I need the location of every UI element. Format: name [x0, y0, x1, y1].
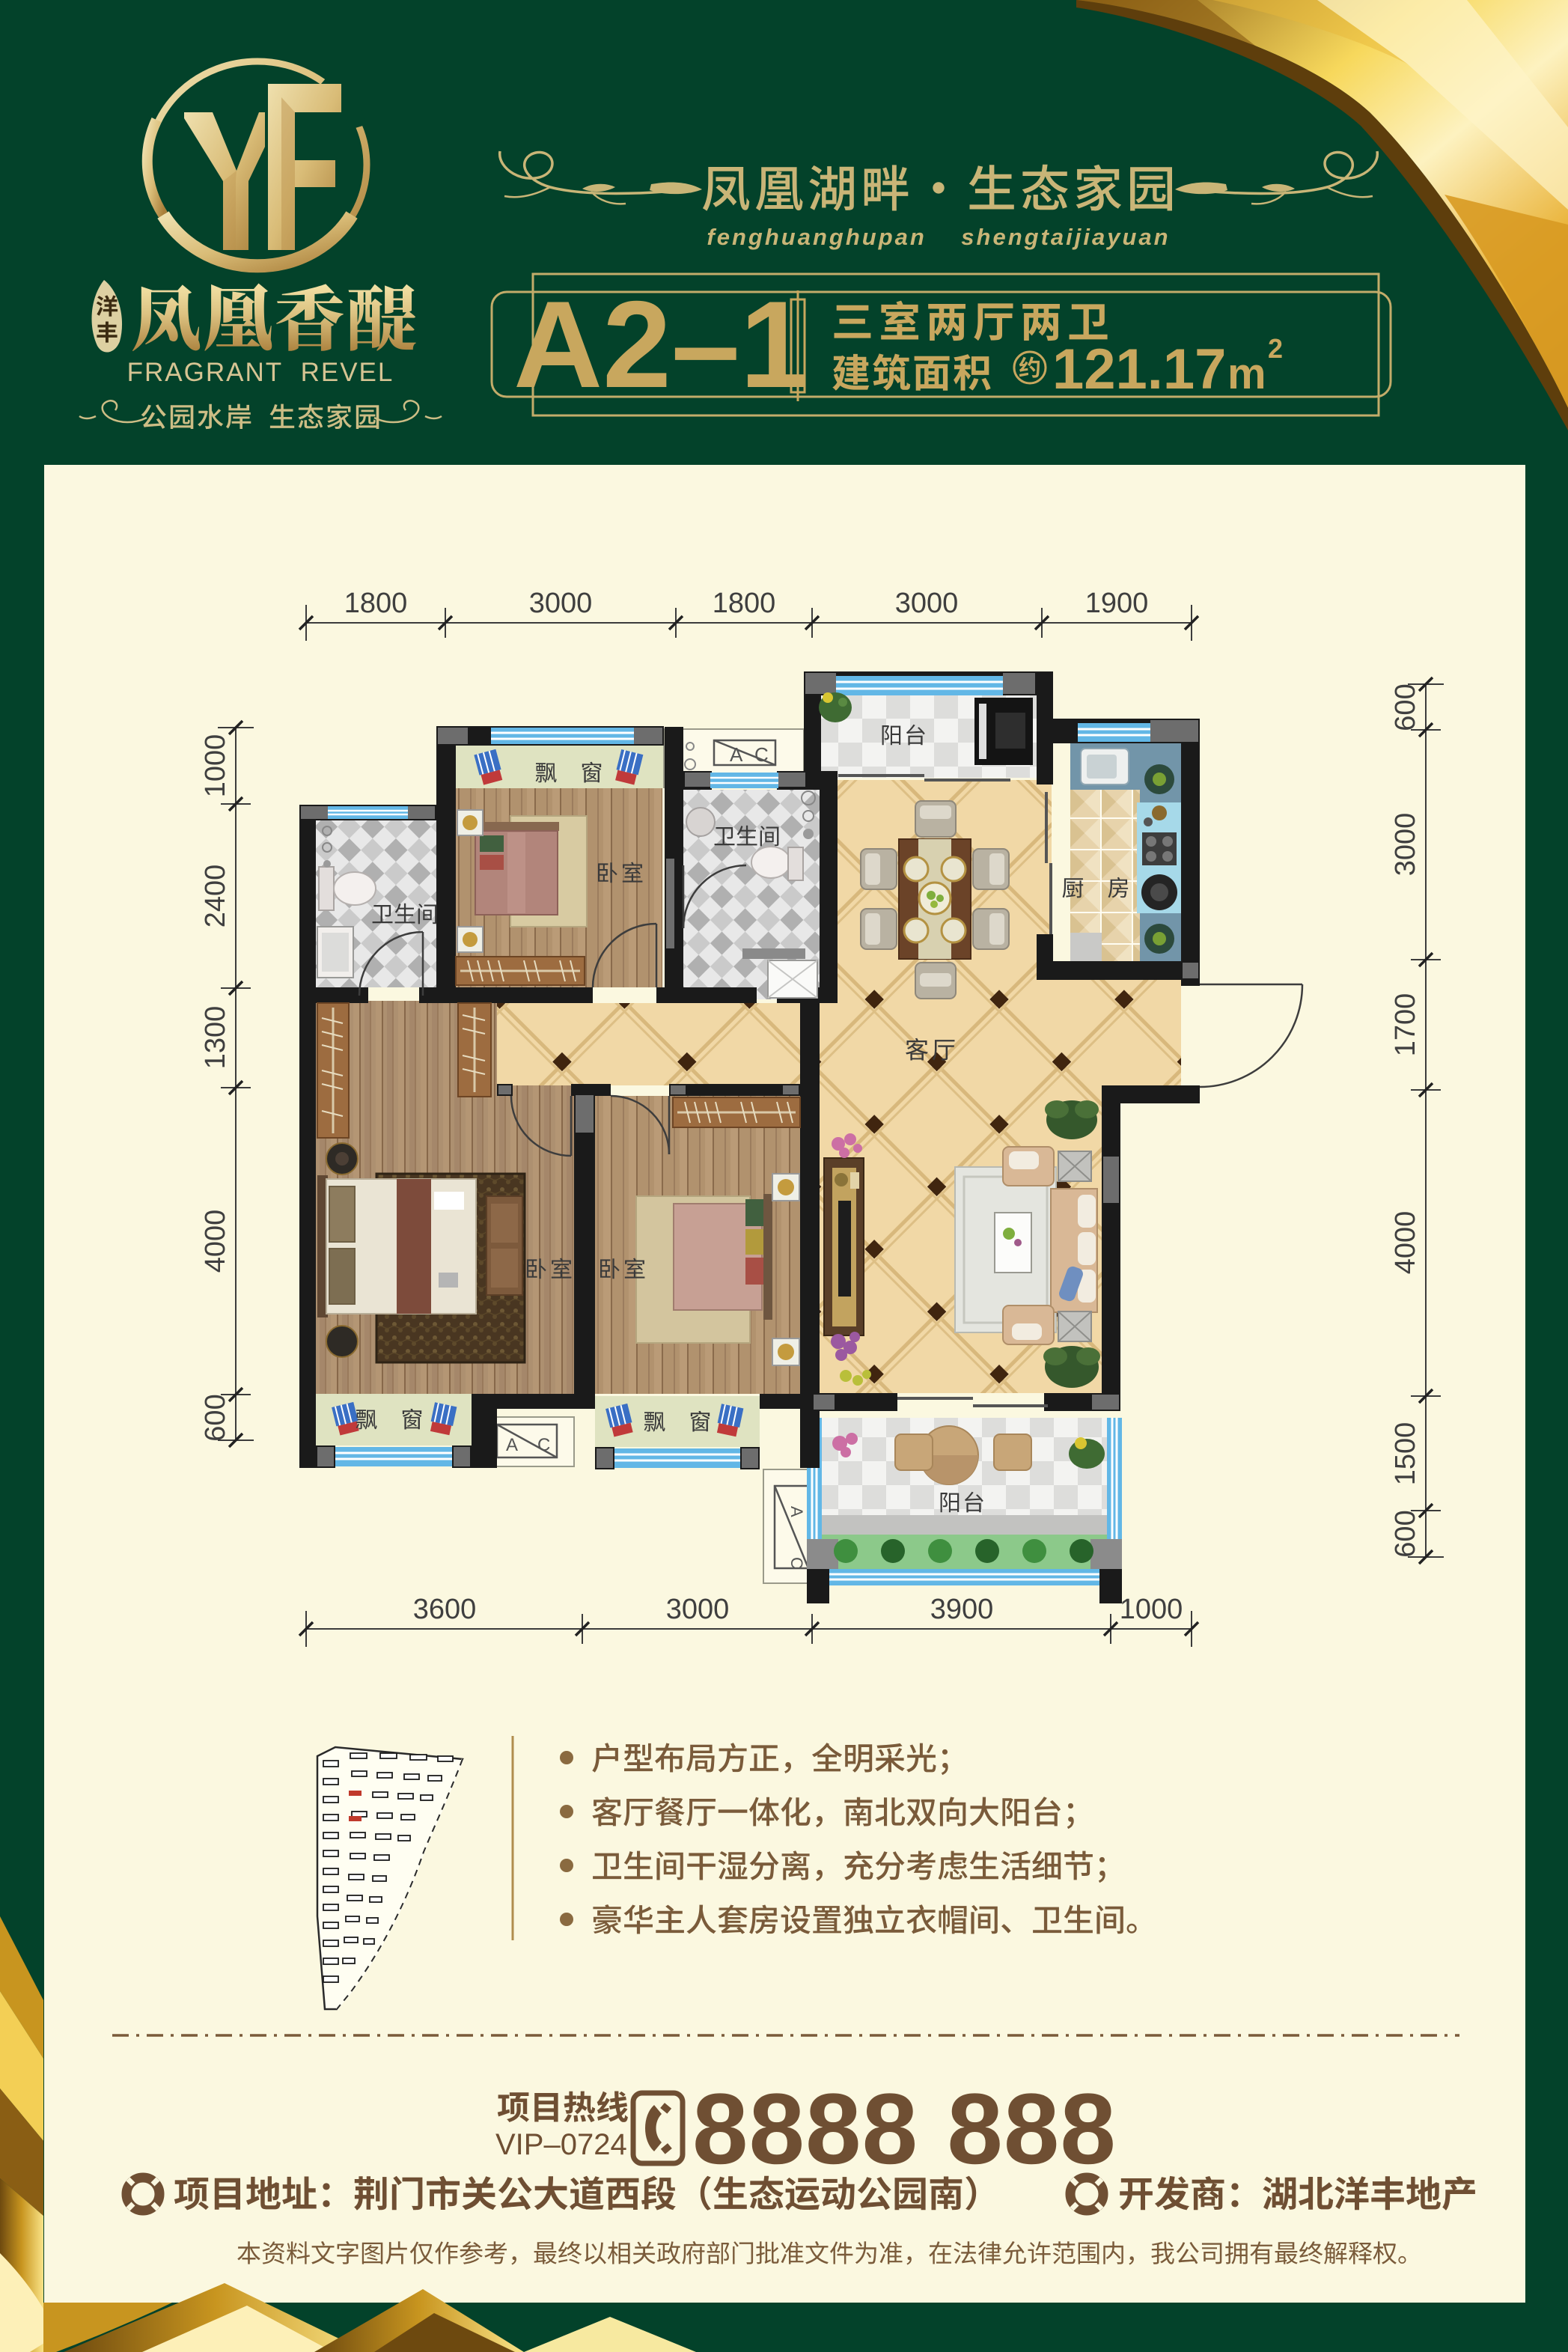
svg-text:2: 2: [1268, 333, 1283, 364]
svg-text:A: A: [730, 743, 743, 766]
svg-text:1900: 1900: [1085, 588, 1149, 619]
svg-text:C: C: [537, 1435, 550, 1455]
svg-text:1000: 1000: [1120, 1594, 1183, 1625]
svg-text:3000: 3000: [529, 588, 593, 619]
svg-text:VIP–0724: VIP–0724: [495, 2128, 627, 2161]
svg-text:3900: 3900: [930, 1594, 994, 1625]
svg-text:1800: 1800: [713, 588, 776, 619]
svg-text:1800: 1800: [344, 588, 408, 619]
svg-text:A: A: [787, 1506, 806, 1517]
svg-text:600: 600: [1390, 683, 1421, 731]
svg-text:4000: 4000: [200, 1210, 231, 1273]
svg-text:1000: 1000: [200, 734, 231, 798]
svg-text:fenghuanghupan shengtaijiay: fenghuanghupan shengtaijiayuan: [707, 224, 1170, 250]
svg-text:3600: 3600: [413, 1594, 477, 1625]
svg-text:FRAGRANT REVEL: FRAGRANT REVEL: [127, 358, 394, 387]
svg-text:121.17: 121.17: [1052, 338, 1226, 401]
svg-text:1700: 1700: [1390, 993, 1421, 1057]
svg-text:1300: 1300: [200, 1006, 231, 1070]
svg-text:C: C: [754, 743, 769, 766]
svg-text:A: A: [506, 1435, 518, 1455]
svg-text:4000: 4000: [1390, 1211, 1421, 1275]
svg-text:3000: 3000: [1390, 813, 1421, 877]
svg-text:1500: 1500: [1390, 1422, 1421, 1486]
svg-text:C: C: [787, 1557, 806, 1569]
svg-text:A2–1: A2–1: [513, 275, 808, 413]
svg-text:3000: 3000: [666, 1594, 730, 1625]
svg-text:3000: 3000: [895, 588, 959, 619]
svg-text:600: 600: [200, 1394, 231, 1441]
svg-text:600: 600: [1390, 1510, 1421, 1557]
svg-text:m: m: [1227, 350, 1266, 398]
svg-text:2400: 2400: [200, 865, 231, 928]
svg-text:8888 888: 8888 888: [692, 2074, 1117, 2185]
